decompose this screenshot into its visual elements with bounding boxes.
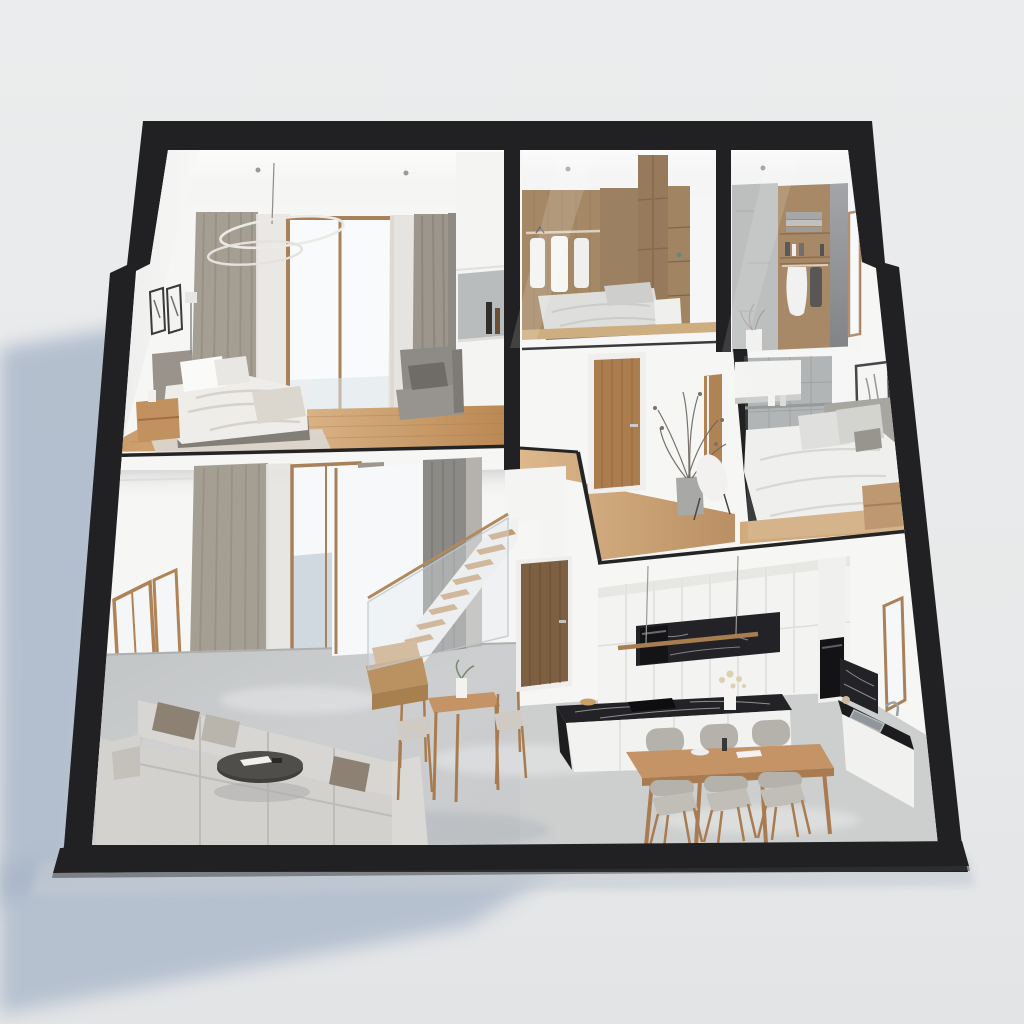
chair-back <box>699 723 738 751</box>
table-vase <box>456 678 467 698</box>
pepper-mill <box>722 738 727 751</box>
chair-back <box>751 719 790 747</box>
door-handle <box>559 620 566 623</box>
room-closet-bedroom <box>510 150 716 350</box>
flower-vase <box>724 688 736 710</box>
render-canvas: 3D dollhouse cutaway render of a two-sto… <box>0 0 1024 1024</box>
black-mullion <box>716 150 731 352</box>
lower-door <box>516 556 572 692</box>
deco-vase <box>148 390 156 402</box>
table-bowl <box>691 749 709 756</box>
black-mullion <box>504 150 520 470</box>
counter-deco <box>842 696 850 704</box>
armchair-pillow <box>408 362 448 390</box>
bedroom-armchair <box>396 346 464 420</box>
living-curtain <box>190 463 268 658</box>
bowl <box>580 699 596 706</box>
pillow <box>214 356 250 386</box>
hallway-door <box>588 352 646 494</box>
mirror-window <box>884 598 905 710</box>
cutaway-render: 3D dollhouse cutaway render of a two-sto… <box>0 0 1024 1024</box>
bottle <box>495 308 500 334</box>
bottle <box>486 302 492 334</box>
living-sheer <box>266 463 292 652</box>
door-handle <box>630 424 638 427</box>
